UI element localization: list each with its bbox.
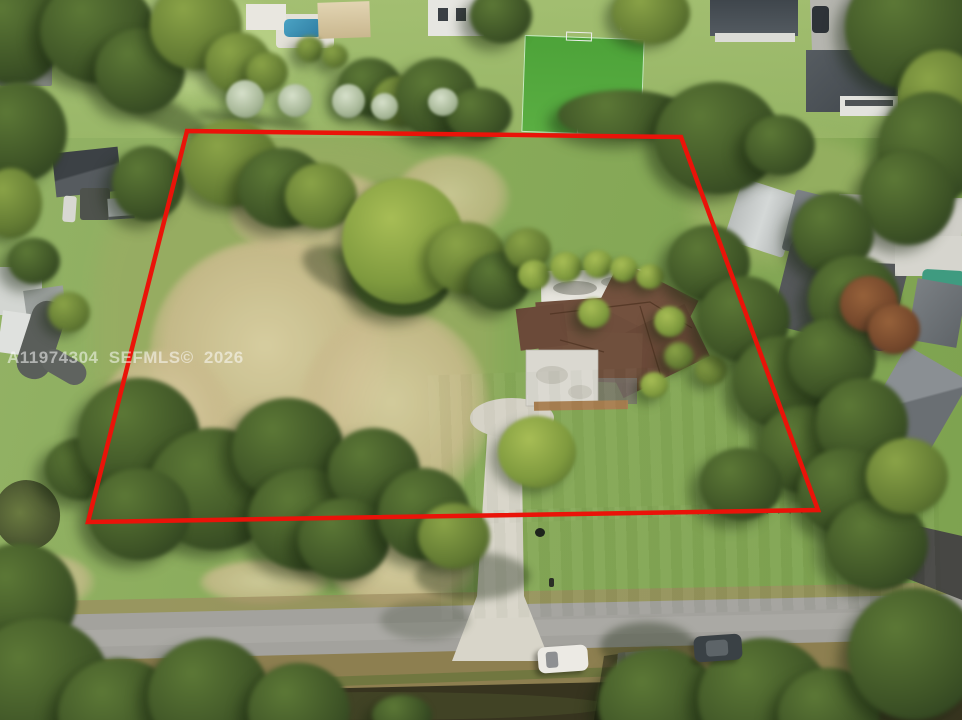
rust-colored-tree — [868, 304, 920, 354]
garage-door-dark — [438, 8, 448, 21]
palm-tree — [518, 260, 550, 290]
palm-tree — [322, 44, 348, 68]
tree — [112, 146, 184, 221]
roof-west — [516, 303, 569, 351]
car-windshield — [545, 651, 558, 668]
palm-tree — [664, 342, 694, 370]
white-truck — [62, 196, 77, 223]
silver-tree — [332, 84, 365, 118]
pool-house-wing — [246, 4, 286, 30]
palm-tree — [610, 256, 638, 282]
dark-car — [693, 633, 743, 662]
palm-tree — [636, 264, 664, 289]
white-car — [537, 644, 589, 673]
mls-watermark: A11974304 SEFMLS© 2026 — [7, 349, 244, 366]
silver-tree — [226, 80, 264, 118]
soccer-goal — [566, 32, 592, 42]
tree — [498, 416, 576, 488]
palm-tree — [640, 372, 668, 398]
tree — [860, 150, 955, 245]
swimming-pool — [284, 19, 322, 37]
tree-shadow-on-road — [380, 600, 470, 640]
palm-tree — [654, 306, 686, 337]
car-roof — [705, 639, 728, 656]
tree — [418, 503, 490, 569]
silver-tree — [428, 88, 458, 116]
garage-door-dark — [456, 8, 466, 21]
tree — [48, 292, 90, 332]
palm-tree — [296, 36, 324, 62]
pool-house-roof — [317, 1, 370, 39]
small-object-on-lawn — [549, 578, 554, 587]
bird-on-lawn — [535, 528, 545, 537]
aerial-listing-photo: A11974304 SEFMLS© 2026 — [0, 0, 962, 720]
silver-tree — [278, 84, 312, 117]
tree — [88, 468, 190, 560]
tree — [745, 115, 815, 175]
neighbor-car — [812, 6, 829, 33]
neighbor-house-charcoal-roof — [710, 0, 798, 36]
twostory-windows — [845, 100, 893, 106]
tree — [8, 238, 60, 284]
house-wall-strip — [715, 33, 795, 42]
palm-tree — [695, 355, 727, 385]
tree — [298, 498, 390, 580]
tree — [700, 448, 782, 520]
yard-clutter — [80, 188, 110, 220]
palm-tree — [583, 250, 613, 278]
palm-tree — [550, 252, 582, 282]
palm-tree — [578, 298, 610, 328]
silver-tree — [371, 93, 398, 120]
palm-shadow-on-deck — [553, 281, 597, 295]
tree — [866, 438, 948, 514]
